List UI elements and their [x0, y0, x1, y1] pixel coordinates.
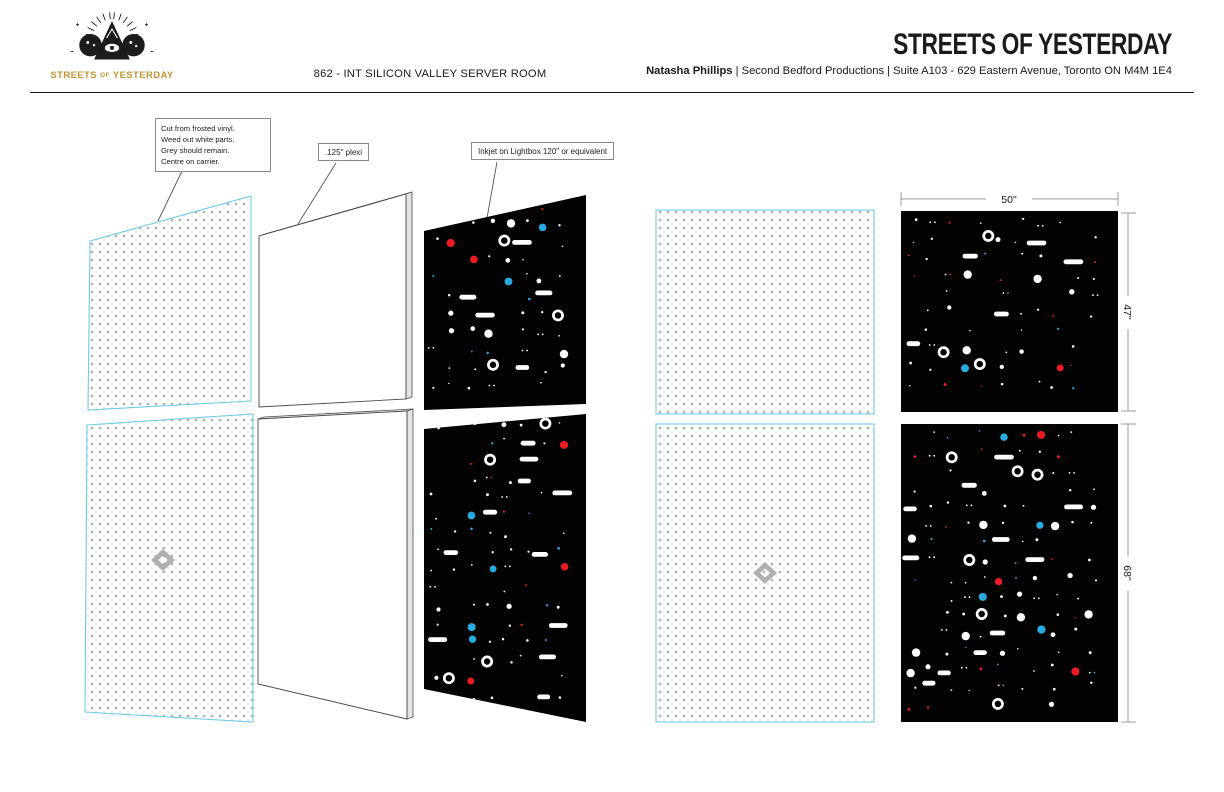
- lightbox-panel-flat-top: [901, 211, 1118, 412]
- callout-plexi-note: .125" plexi: [318, 143, 369, 161]
- callout-vinyl-line2: Weed out white parts.: [161, 134, 265, 145]
- callout-vinyl-line4: Centre on carrier.: [161, 156, 265, 167]
- lightbox-panel-exploded-top: [424, 195, 586, 410]
- vinyl-panel-exploded-bottom: [85, 414, 253, 722]
- leader-line-vinyl: [158, 169, 183, 221]
- dimension-height-bottom: 68": [1121, 424, 1136, 722]
- dimension-label-68: 68": [1121, 565, 1133, 581]
- dimension-label-47: 47": [1121, 304, 1133, 320]
- dimension-label-50: 50": [1001, 194, 1017, 206]
- callout-vinyl-note: Cut from frosted vinyl. Weed out white p…: [155, 118, 271, 172]
- plexi-panel-exploded-bottom: [258, 409, 413, 719]
- leader-line-plexi: [298, 163, 336, 224]
- vinyl-panel-flat-top: [656, 210, 874, 414]
- vinyl-panel-flat-bottom: [656, 424, 874, 722]
- dimension-width-top: 50": [901, 192, 1118, 206]
- vinyl-panel-exploded-top: [88, 196, 251, 410]
- callout-vinyl-line1: Cut from frosted vinyl.: [161, 123, 265, 134]
- callout-inkjet-note: Inkjet on Lightbox 120" or equivalent: [471, 142, 614, 160]
- dimension-height-top: 47": [1121, 213, 1136, 411]
- lightbox-panel-flat-bottom: [901, 424, 1118, 722]
- callout-vinyl-line3: Grey should remain.: [161, 145, 265, 156]
- leader-line-inkjet: [487, 162, 497, 218]
- plexi-panel-exploded-top: [259, 192, 412, 407]
